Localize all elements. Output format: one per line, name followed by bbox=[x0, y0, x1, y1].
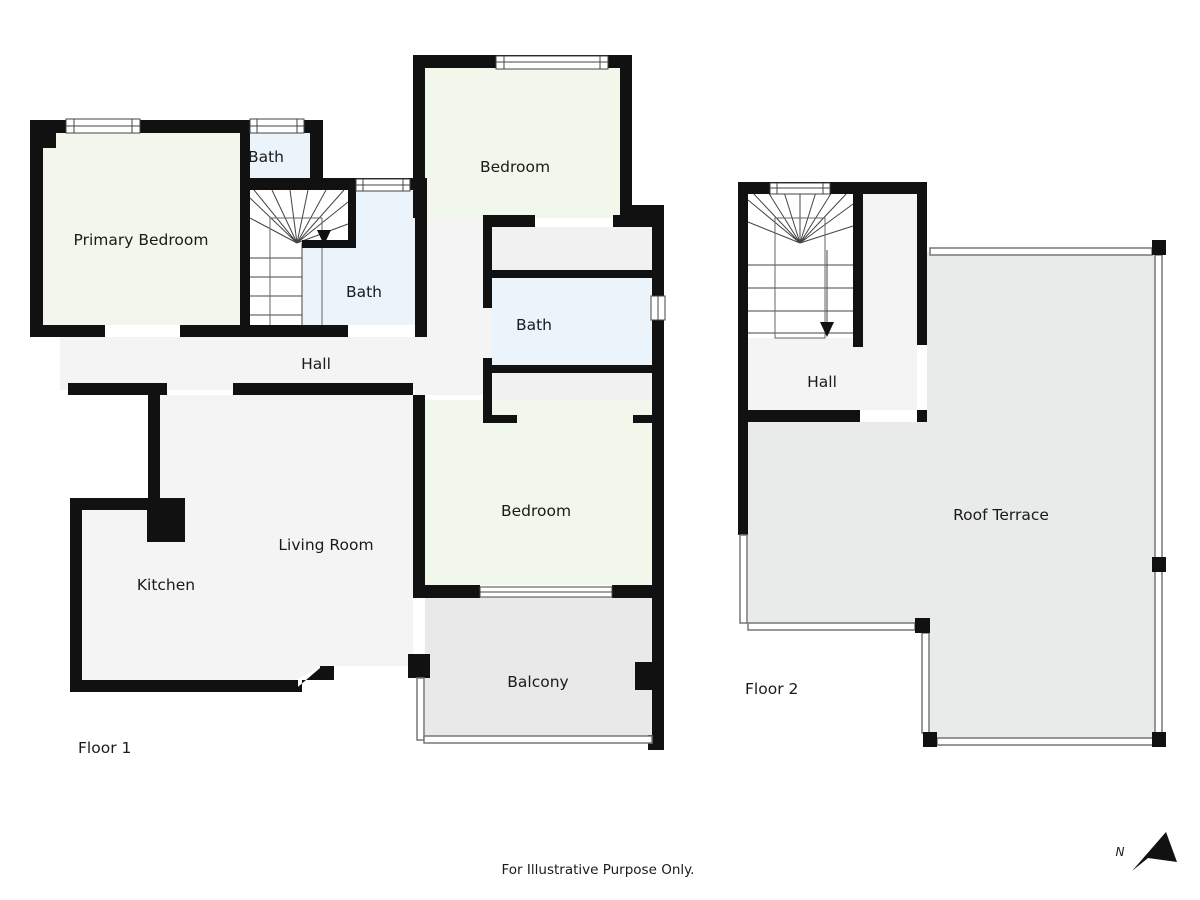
wall-segment bbox=[413, 55, 425, 218]
terrace-post bbox=[1152, 557, 1166, 572]
wall-segment bbox=[30, 120, 43, 337]
label-roof-terrace: Roof Terrace bbox=[953, 506, 1049, 524]
window-bath-top bbox=[250, 119, 304, 133]
label-primary-bedroom: Primary Bedroom bbox=[74, 231, 209, 249]
wall-segment bbox=[302, 325, 348, 337]
wall-segment bbox=[70, 498, 82, 692]
closet1-fill bbox=[492, 227, 652, 270]
stairwell1-upper-fill bbox=[250, 190, 350, 243]
north-arrow: N bbox=[1116, 832, 1177, 871]
terrace-rail-left bbox=[740, 535, 747, 623]
label-bath-top: Bath bbox=[248, 148, 284, 166]
floorplan-canvas: Primary Bedroom Bath Bath Bedroom Bath H… bbox=[0, 0, 1200, 900]
wall-segment bbox=[613, 215, 652, 227]
label-bath-mid: Bath bbox=[346, 283, 382, 301]
wall-segment bbox=[233, 383, 413, 395]
wall-segment bbox=[853, 192, 863, 347]
wall-segment bbox=[612, 585, 656, 598]
terrace-rail-bottom bbox=[937, 738, 1155, 745]
label-floor2: Floor 2 bbox=[745, 680, 798, 698]
wall-segment bbox=[42, 132, 56, 148]
label-balcony: Balcony bbox=[507, 673, 568, 691]
label-kitchen: Kitchen bbox=[137, 576, 195, 594]
wall-segment bbox=[738, 182, 927, 194]
window-bath-right bbox=[651, 296, 665, 320]
window-primary-bedroom bbox=[66, 119, 140, 133]
wall-segment bbox=[240, 178, 250, 337]
wall-segment bbox=[738, 410, 860, 422]
label-bedroom-right: Bedroom bbox=[501, 502, 571, 520]
terrace-post bbox=[923, 732, 937, 747]
label-floor1: Floor 1 bbox=[78, 739, 131, 757]
landing2-fill bbox=[863, 192, 917, 345]
wall-segment bbox=[483, 218, 492, 308]
terrace-rail-mid-vertical bbox=[922, 633, 929, 733]
label-bedroom-top: Bedroom bbox=[480, 158, 550, 176]
room-primary-bedroom-fill bbox=[42, 132, 240, 325]
disclaimer-text: For Illustrative Purpose Only. bbox=[502, 862, 695, 878]
kitchen-column bbox=[147, 498, 185, 542]
floor2-room-fills bbox=[748, 192, 1158, 740]
window-bath-mid bbox=[356, 179, 410, 191]
balcony-rail-bottom bbox=[424, 736, 652, 743]
wall-segment bbox=[738, 422, 748, 535]
label-hall2: Hall bbox=[807, 373, 837, 391]
floor1-room-fills bbox=[42, 68, 655, 740]
window-floor2-stairs bbox=[770, 183, 830, 194]
wall-segment bbox=[492, 270, 652, 278]
room-balcony-fill bbox=[425, 592, 655, 740]
wall-segment bbox=[738, 182, 748, 422]
terrace-post bbox=[1152, 732, 1166, 747]
terrace-post bbox=[1152, 240, 1166, 255]
balcony-rail-left bbox=[417, 678, 424, 740]
wall-segment bbox=[148, 395, 160, 505]
wall-segment bbox=[652, 205, 664, 750]
label-bath-right: Bath bbox=[516, 316, 552, 334]
room-bedroom-right-fill bbox=[425, 400, 652, 585]
balcony-sliding-door bbox=[480, 587, 612, 597]
wall-segment bbox=[917, 410, 927, 422]
terrace-rail-right bbox=[1155, 255, 1162, 735]
wall-segment bbox=[320, 666, 334, 679]
room-bedroom-top-fill bbox=[425, 68, 620, 218]
wall-segment bbox=[302, 240, 352, 248]
north-arrow-icon bbox=[1132, 832, 1177, 871]
wall-segment bbox=[413, 395, 425, 598]
wall-segment bbox=[483, 415, 517, 423]
wall-segment bbox=[483, 358, 492, 423]
terrace-rail-notch bbox=[748, 623, 915, 630]
wall-segment bbox=[30, 325, 105, 337]
floorplan-page: Primary Bedroom Bath Bath Bedroom Bath H… bbox=[0, 0, 1200, 900]
window-bedroom-top bbox=[496, 56, 608, 69]
wall-segment bbox=[492, 365, 652, 373]
wall-segment bbox=[70, 680, 298, 692]
stairwell1-flight-fill bbox=[250, 243, 302, 333]
north-arrow-label: N bbox=[1116, 845, 1125, 859]
wall-segment bbox=[635, 662, 653, 690]
label-hall1: Hall bbox=[301, 355, 331, 373]
wall-segment bbox=[68, 383, 167, 395]
terrace-post bbox=[915, 618, 930, 633]
wall-segment bbox=[408, 654, 430, 678]
wall-segment bbox=[917, 182, 927, 345]
wall-segment bbox=[348, 184, 356, 248]
wall-segment bbox=[633, 415, 652, 423]
terrace-rail-top bbox=[930, 248, 1152, 255]
wall-segment bbox=[620, 55, 632, 218]
wall-segment bbox=[413, 585, 480, 598]
label-living-room: Living Room bbox=[278, 536, 373, 554]
